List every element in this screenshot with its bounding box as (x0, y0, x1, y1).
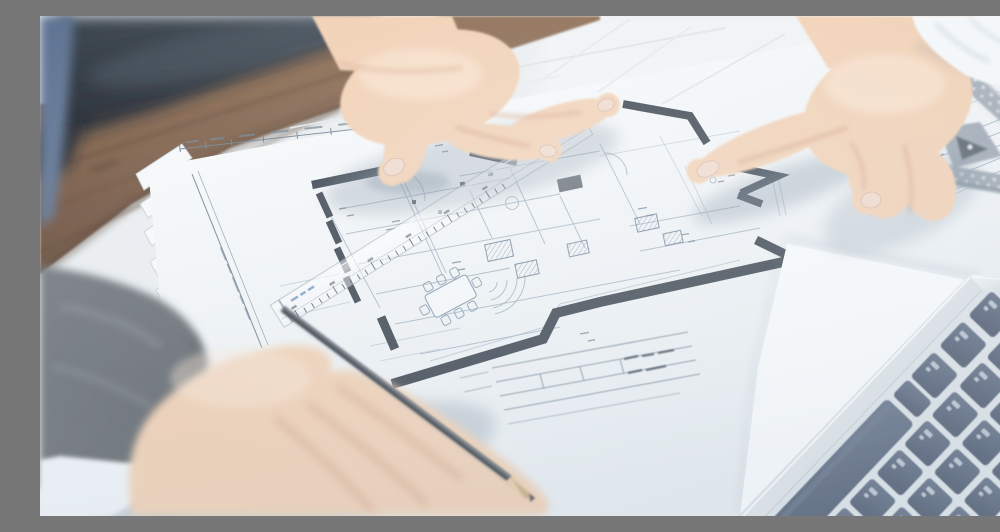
photo-architects-blueprint (40, 16, 1000, 516)
glow-overlay (40, 16, 1000, 516)
